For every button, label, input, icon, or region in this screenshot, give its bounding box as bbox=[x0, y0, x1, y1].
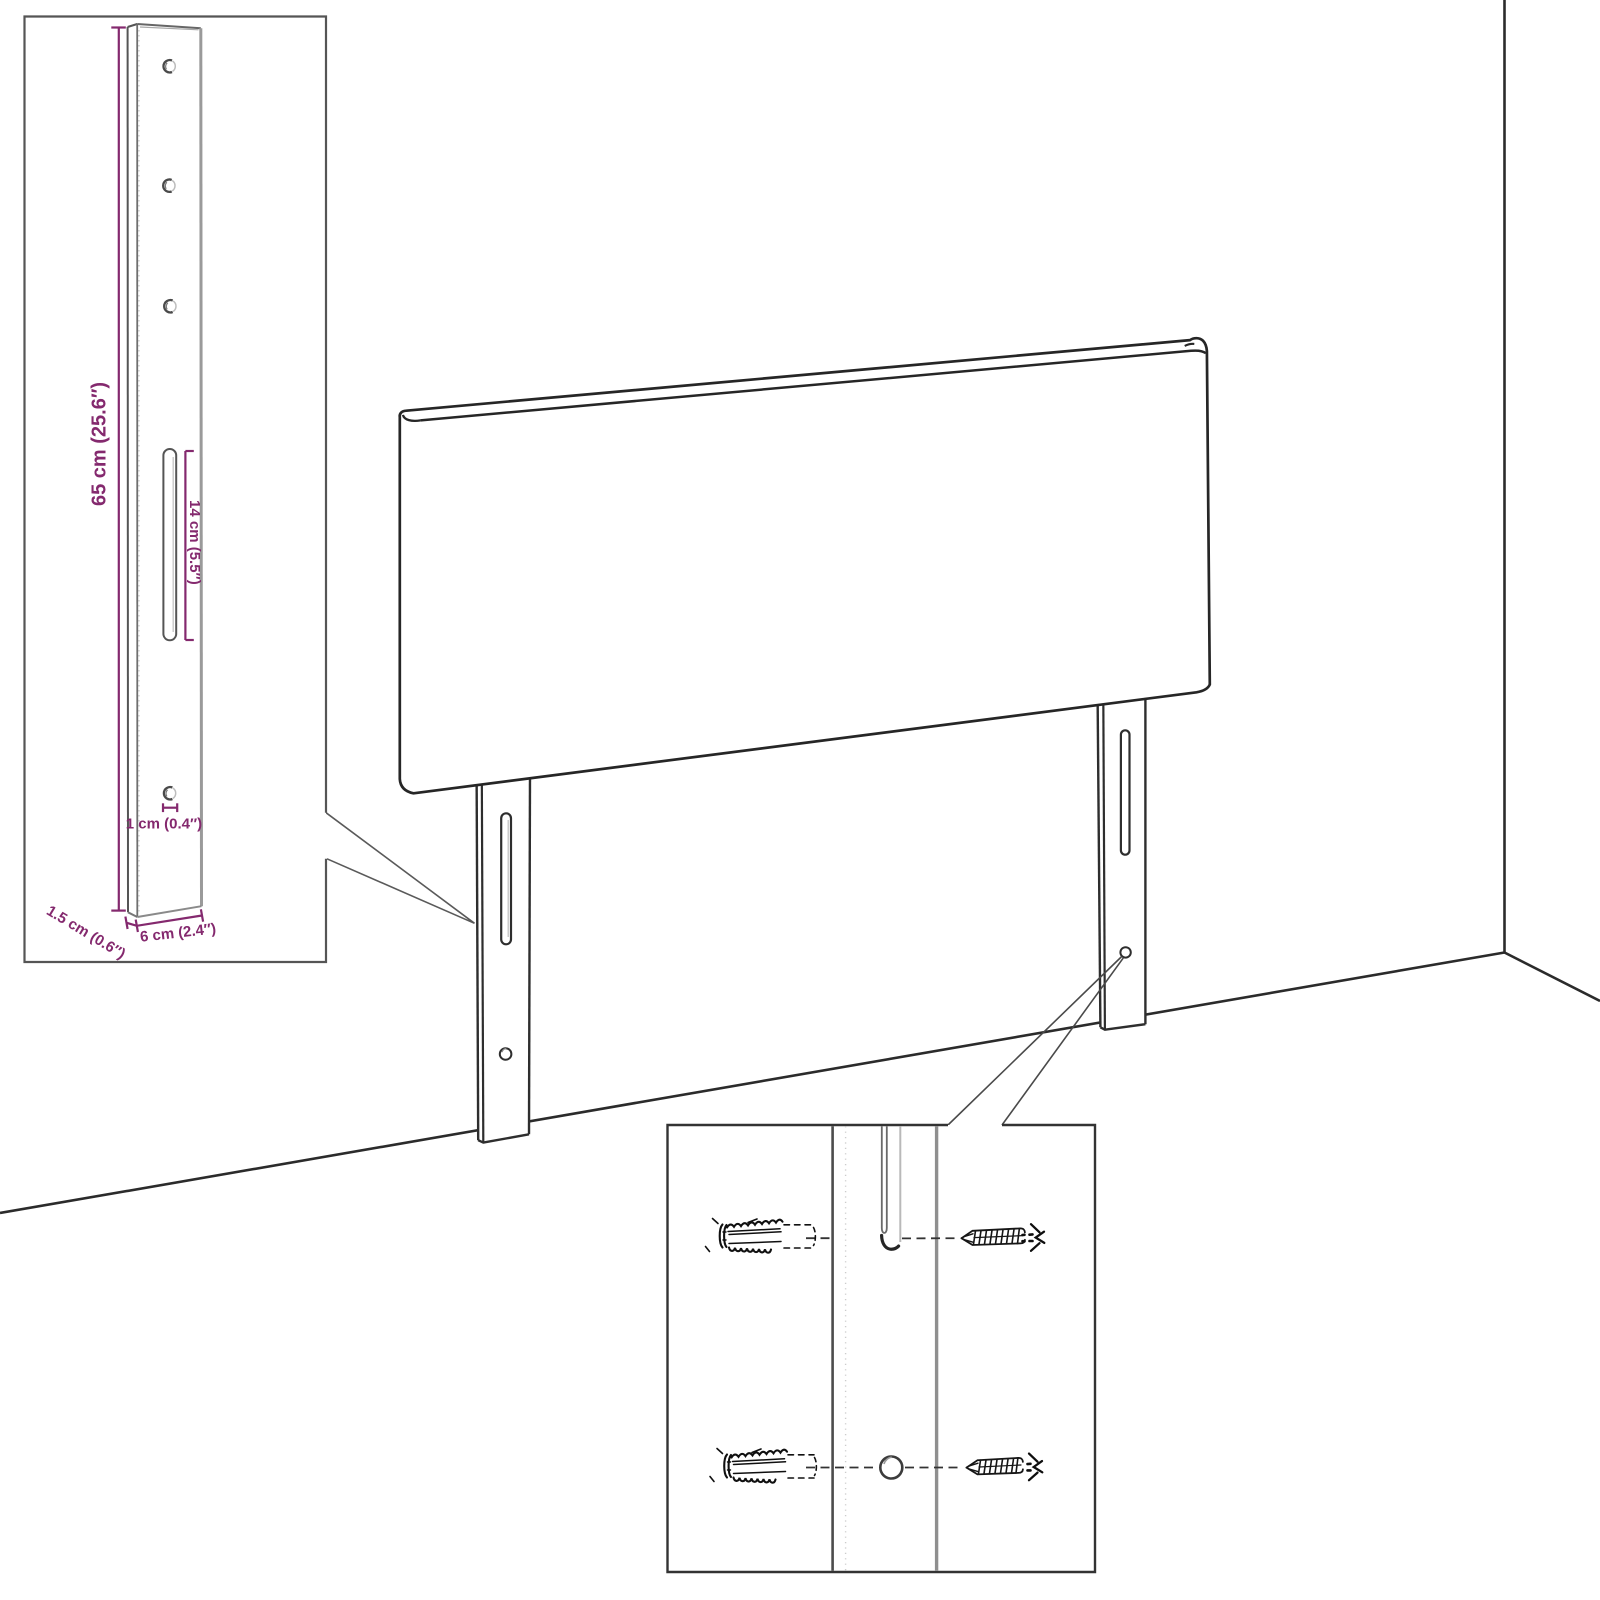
svg-text:14 cm (5.5″): 14 cm (5.5″) bbox=[186, 500, 203, 585]
svg-text:65 cm (25.6″): 65 cm (25.6″) bbox=[89, 382, 111, 506]
svg-text:1 cm (0.4″): 1 cm (0.4″) bbox=[126, 815, 202, 832]
